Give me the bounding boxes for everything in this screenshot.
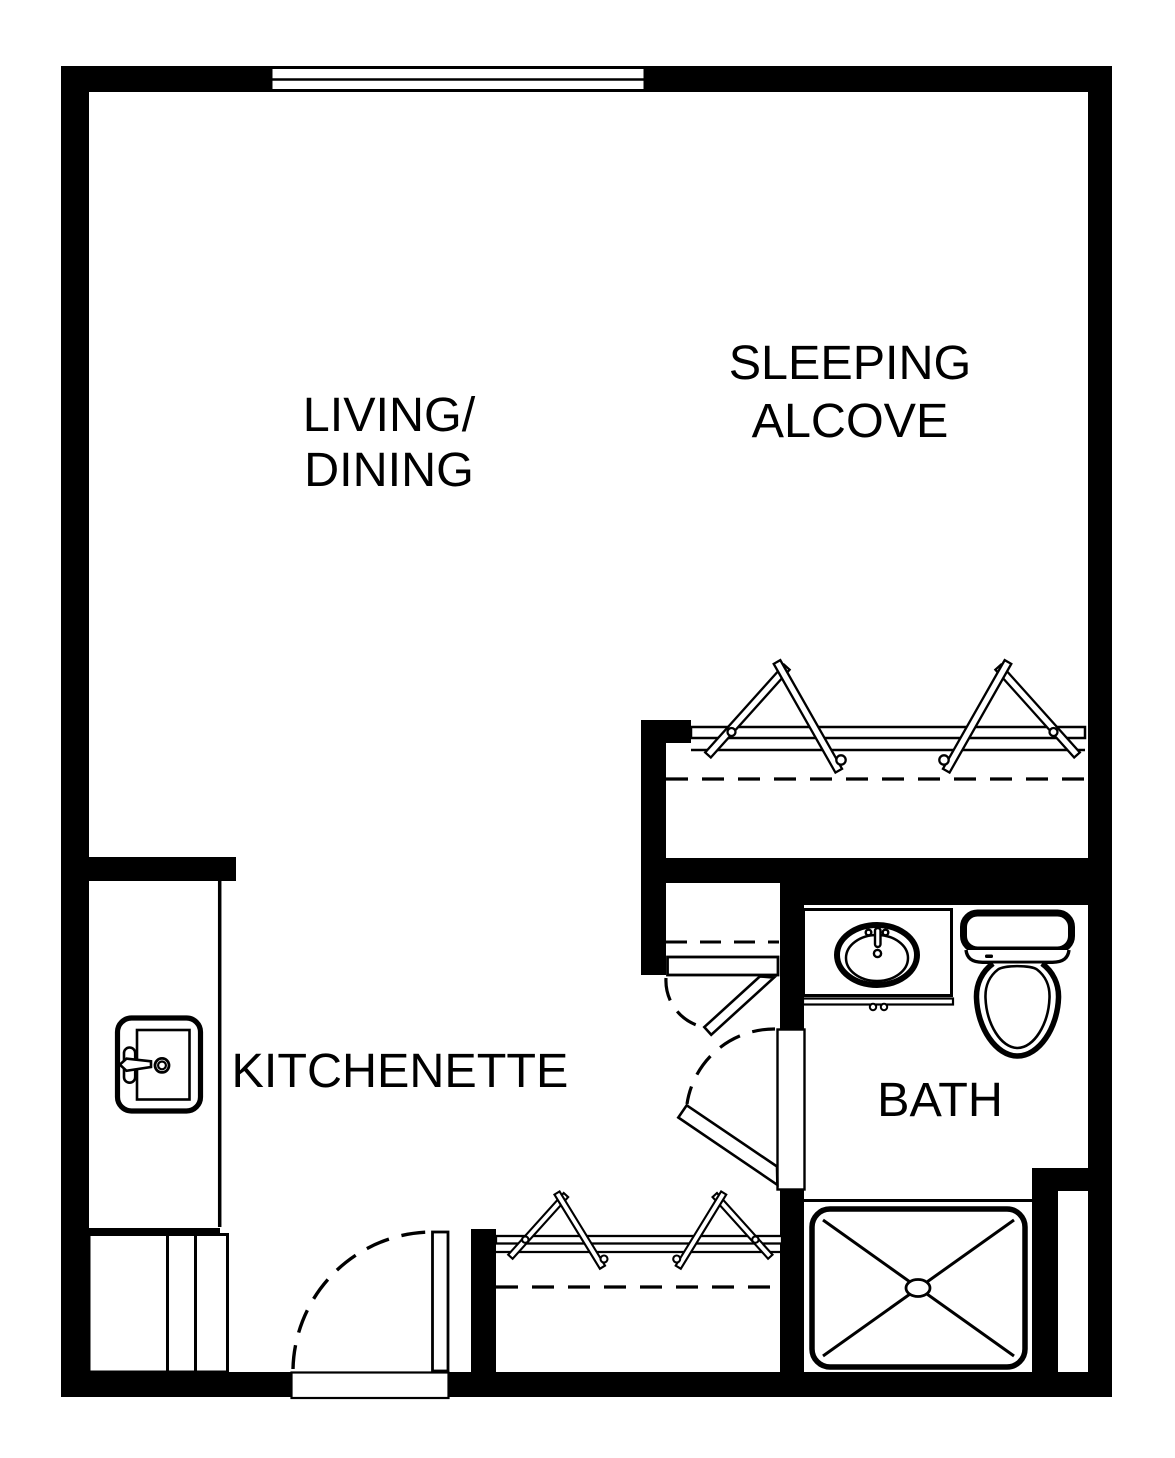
svg-text:ALCOVE: ALCOVE <box>752 394 949 448</box>
svg-text:SLEEPING: SLEEPING <box>729 336 972 390</box>
svg-text:BATH: BATH <box>877 1073 1003 1127</box>
svg-text:DINING: DINING <box>304 443 474 497</box>
svg-text:KITCHENETTE: KITCHENETTE <box>232 1044 569 1098</box>
svg-text:LIVING/: LIVING/ <box>303 388 476 442</box>
